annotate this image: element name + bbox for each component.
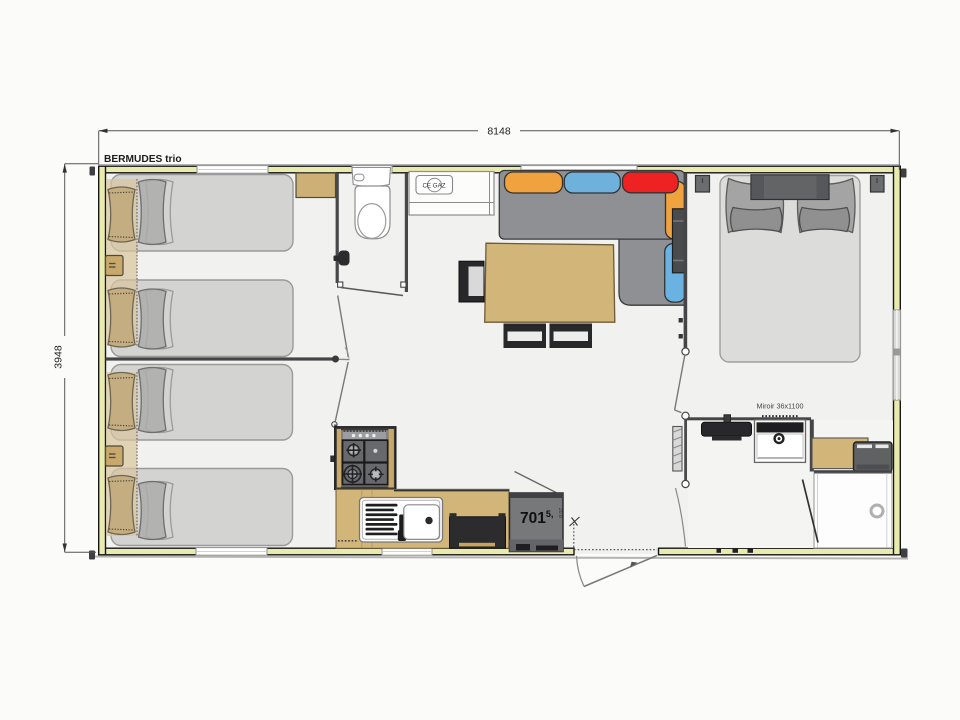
svg-text:3948: 3948: [53, 345, 65, 369]
svg-text:CE GAZ: CE GAZ: [422, 183, 445, 190]
svg-text:20.8: 20.8: [557, 508, 563, 518]
svg-text:8148: 8148: [487, 126, 511, 138]
svg-text:Miroir 36x1100: Miroir 36x1100: [756, 402, 803, 411]
svg-text:BERMUDES trio: BERMUDES trio: [104, 154, 182, 165]
